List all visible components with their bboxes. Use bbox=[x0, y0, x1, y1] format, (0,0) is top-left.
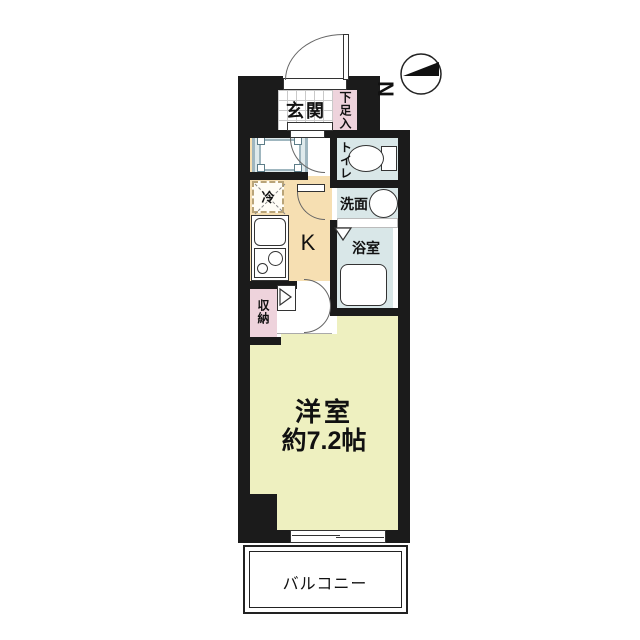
pan-foot-icon bbox=[257, 137, 265, 145]
wall bbox=[238, 76, 250, 543]
kitchen-label: K bbox=[296, 231, 320, 255]
pan-foot-icon bbox=[294, 164, 302, 172]
wall bbox=[238, 337, 281, 345]
window-sash bbox=[292, 535, 340, 536]
wall bbox=[386, 530, 410, 543]
kitchen-sink bbox=[254, 218, 286, 246]
wall bbox=[330, 308, 398, 316]
washroom-door-leaf bbox=[297, 184, 325, 192]
wall bbox=[238, 530, 290, 543]
shoe-storage-label: 下足入 bbox=[337, 91, 353, 129]
compass-north-label: N bbox=[373, 81, 398, 97]
balcony-label: バルコニー bbox=[265, 576, 385, 594]
bathtub-icon bbox=[340, 264, 387, 306]
wall bbox=[250, 172, 308, 180]
wall bbox=[330, 180, 398, 188]
genkan-label: 玄関 bbox=[280, 101, 332, 121]
north-compass-icon: N bbox=[370, 45, 456, 111]
washbasin-icon bbox=[369, 189, 398, 218]
storage-label: 収納 bbox=[256, 294, 270, 330]
stove-burner-icon bbox=[268, 251, 283, 266]
main-room-label: 洋室 bbox=[264, 398, 384, 426]
room-main-upper-right bbox=[337, 316, 398, 334]
washroom-label: 洗面 bbox=[339, 196, 369, 211]
wall bbox=[398, 130, 410, 543]
entrance-door-leaf bbox=[343, 34, 349, 80]
door-threshold-line bbox=[277, 333, 332, 334]
entrance-door-arc-icon bbox=[285, 34, 343, 80]
hall-door-leaf bbox=[290, 130, 325, 138]
toilet-bowl-icon bbox=[348, 145, 384, 172]
pan-foot-icon bbox=[257, 164, 265, 172]
stove-burner-icon bbox=[257, 263, 268, 274]
storage-door-icon bbox=[278, 286, 294, 308]
refrigerator-label: 冷 bbox=[261, 190, 275, 204]
window-sash bbox=[336, 537, 384, 538]
floor-plan: N 玄関 下足入 トイレ 洗面 浴室 K 冷 収納 洋室 約7.2帖 バルコニー bbox=[0, 0, 640, 640]
room-main-upper bbox=[281, 334, 398, 345]
bathroom-label: 浴室 bbox=[351, 240, 381, 255]
genkan-step bbox=[287, 122, 333, 131]
wall bbox=[250, 130, 290, 138]
main-room-size-label: 約7.2帖 bbox=[264, 427, 384, 455]
toilet-label: トイレ bbox=[338, 140, 353, 180]
